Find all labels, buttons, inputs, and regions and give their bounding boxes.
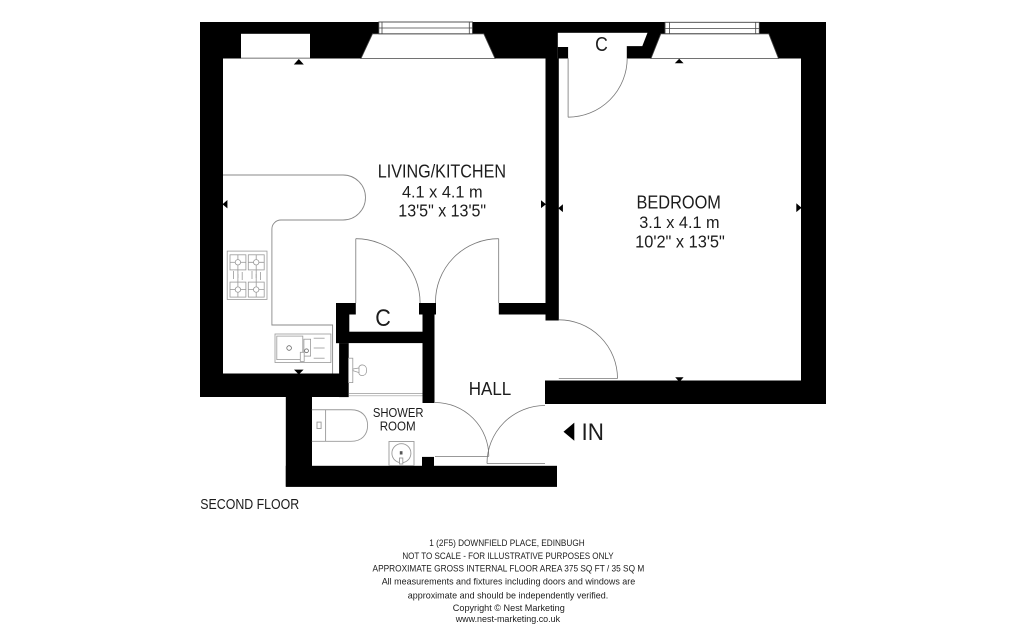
svg-text:IN: IN xyxy=(582,419,604,446)
svg-text:SECOND FLOOR: SECOND FLOOR xyxy=(200,497,299,513)
svg-text:APPROXIMATE GROSS INTERNAL FLO: APPROXIMATE GROSS INTERNAL FLOOR AREA 37… xyxy=(373,563,645,574)
svg-text:ROOM: ROOM xyxy=(380,419,416,434)
svg-text:NOT TO SCALE - FOR ILLUSTRATIV: NOT TO SCALE - FOR ILLUSTRATIVE PURPOSES… xyxy=(402,551,614,562)
svg-text:C: C xyxy=(595,33,608,56)
svg-text:SHOWER: SHOWER xyxy=(373,405,424,420)
svg-text:LIVING/KITCHEN: LIVING/KITCHEN xyxy=(378,161,506,182)
svg-text:13'5" x 13'5": 13'5" x 13'5" xyxy=(398,201,486,221)
svg-text:All measurements and fixtures: All measurements and fixtures including … xyxy=(382,576,636,587)
svg-text:10'2" x 13'5": 10'2" x 13'5" xyxy=(635,231,725,251)
svg-text:4.1 x 4.1 m: 4.1 x 4.1 m xyxy=(402,183,483,202)
svg-text:approximate and should be inde: approximate and should be independently … xyxy=(408,590,609,601)
svg-text:HALL: HALL xyxy=(469,379,512,399)
svg-text:BEDROOM: BEDROOM xyxy=(637,191,721,212)
svg-text:C: C xyxy=(375,305,391,332)
svg-text:www.nest-marketing.co.uk: www.nest-marketing.co.uk xyxy=(455,614,561,625)
svg-text:1 (2F5) DOWNFIELD PLACE, EDINB: 1 (2F5) DOWNFIELD PLACE, EDINBUGH xyxy=(429,538,585,549)
svg-text:3.1 x 4.1 m: 3.1 x 4.1 m xyxy=(639,213,719,232)
svg-text:Copyright © Nest Marketing: Copyright © Nest Marketing xyxy=(453,603,565,614)
